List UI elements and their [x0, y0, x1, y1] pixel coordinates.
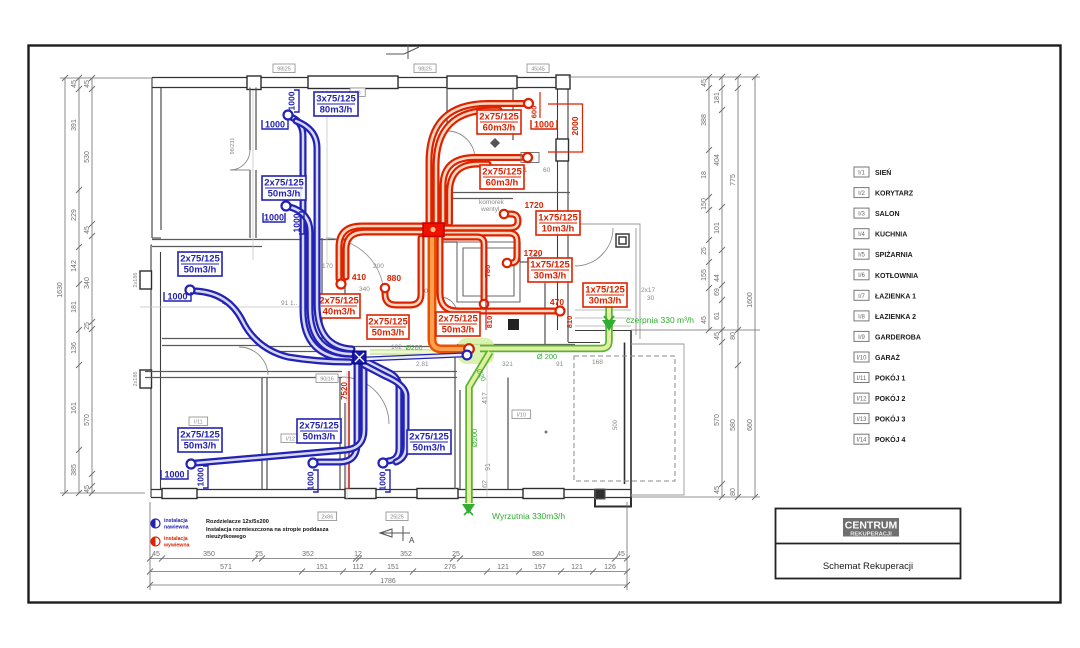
svg-text:I/12: I/12 — [286, 437, 295, 443]
svg-text:44: 44 — [714, 274, 721, 282]
svg-text:I/3: I/3 — [858, 212, 865, 218]
svg-text:168: 168 — [592, 359, 603, 366]
svg-text:I/7: I/7 — [858, 294, 865, 300]
svg-text:30: 30 — [647, 295, 655, 302]
svg-text:2x75/125: 2x75/125 — [438, 314, 478, 325]
svg-text:50m3/h: 50m3/h — [413, 443, 446, 454]
svg-text:SPIŻARNIA: SPIŻARNIA — [875, 251, 913, 259]
svg-text:121: 121 — [497, 564, 509, 571]
svg-text:570: 570 — [714, 414, 721, 426]
svg-text:410: 410 — [352, 272, 366, 282]
svg-text:KORYTARZ: KORYTARZ — [875, 191, 914, 198]
svg-text:1x75/125: 1x75/125 — [538, 213, 578, 224]
svg-text:98|25: 98|25 — [277, 67, 291, 73]
svg-text:571: 571 — [220, 564, 232, 571]
svg-text:80: 80 — [730, 332, 737, 340]
svg-text:Ø200: Ø200 — [470, 429, 479, 447]
svg-text:2x186: 2x186 — [133, 273, 139, 288]
svg-text:580: 580 — [730, 419, 737, 431]
svg-text:REKUPERACJI: REKUPERACJI — [850, 532, 892, 538]
svg-text:10m3/h: 10m3/h — [542, 224, 575, 235]
svg-text:2x75/125: 2x75/125 — [319, 296, 359, 307]
svg-text:30m3/h: 30m3/h — [589, 296, 622, 307]
svg-text:340: 340 — [359, 286, 370, 293]
svg-text:50m3/h: 50m3/h — [303, 432, 336, 443]
svg-text:229: 229 — [71, 209, 78, 221]
svg-text:157: 157 — [534, 564, 546, 571]
svg-text:91: 91 — [556, 361, 564, 368]
svg-text:50m3/h: 50m3/h — [268, 189, 301, 200]
svg-text:Instalacja rozmieszczona na st: Instalacja rozmieszczona na stropie podd… — [206, 527, 329, 533]
svg-text:570: 570 — [84, 414, 91, 426]
svg-text:25: 25 — [255, 551, 263, 558]
svg-text:2x75/125: 2x75/125 — [479, 112, 519, 123]
svg-text:Rozdzielacze 12x/5x200: Rozdzielacze 12x/5x200 — [206, 519, 269, 525]
svg-text:69: 69 — [714, 288, 721, 296]
svg-text:126: 126 — [604, 564, 616, 571]
svg-text:I/6: I/6 — [858, 273, 865, 279]
svg-text:I/11: I/11 — [857, 376, 867, 382]
svg-text:45: 45 — [84, 80, 91, 88]
svg-text:I/13: I/13 — [856, 417, 867, 423]
svg-text:1000: 1000 — [292, 213, 302, 232]
svg-text:45: 45 — [714, 332, 721, 340]
svg-text:POKÓJ 1: POKÓJ 1 — [875, 374, 905, 383]
svg-text:25: 25 — [84, 322, 91, 330]
svg-text:112: 112 — [352, 564, 363, 571]
svg-text:SALON: SALON — [875, 211, 900, 218]
svg-text:1630: 1630 — [57, 282, 64, 298]
svg-text:1x75/125: 1x75/125 — [585, 285, 625, 296]
svg-text:530: 530 — [84, 151, 91, 163]
svg-text:KUCHNIA: KUCHNIA — [875, 232, 907, 239]
svg-text:45: 45 — [701, 79, 708, 87]
svg-text:1000: 1000 — [264, 213, 284, 223]
svg-text:7520: 7520 — [340, 382, 349, 400]
svg-text:1000: 1000 — [164, 470, 184, 480]
svg-text:instalacja: instalacja — [164, 536, 188, 542]
svg-text:45: 45 — [71, 80, 78, 88]
svg-text:181: 181 — [714, 92, 721, 104]
svg-text:385: 385 — [71, 464, 78, 476]
svg-text:I/4: I/4 — [858, 232, 865, 238]
svg-text:POKÓJ 4: POKÓJ 4 — [875, 435, 905, 444]
svg-text:60m3/h: 60m3/h — [483, 123, 516, 134]
svg-text:350: 350 — [203, 551, 215, 558]
svg-text:I/9: I/9 — [858, 335, 865, 341]
svg-text:I/8: I/8 — [858, 314, 865, 320]
svg-text:ŁAZIENKA 2: ŁAZIENKA 2 — [875, 314, 916, 321]
svg-text:50m3/h: 50m3/h — [184, 265, 217, 276]
svg-text:25: 25 — [701, 247, 708, 255]
svg-text:80: 80 — [730, 488, 737, 496]
svg-text:GARAŻ: GARAŻ — [875, 354, 901, 362]
svg-text:komorek: komorek — [479, 199, 505, 206]
svg-text:I/2: I/2 — [858, 191, 865, 197]
svg-text:155: 155 — [701, 269, 708, 281]
svg-text:200: 200 — [373, 263, 384, 270]
svg-text:810: 810 — [565, 316, 574, 329]
svg-text:388: 388 — [701, 114, 708, 126]
svg-text:1000: 1000 — [534, 120, 554, 130]
svg-text:2x75/125: 2x75/125 — [299, 421, 339, 432]
svg-text:nieużytkowego: nieużytkowego — [206, 534, 247, 540]
svg-text:wywiewna: wywiewna — [163, 543, 189, 549]
svg-text:25|25: 25|25 — [390, 515, 404, 521]
svg-text:2x75/125: 2x75/125 — [368, 317, 408, 328]
svg-text:50m3/h: 50m3/h — [184, 441, 217, 452]
svg-text:161: 161 — [71, 402, 78, 414]
svg-text:I/1: I/1 — [858, 171, 865, 177]
svg-text:1600: 1600 — [747, 292, 754, 308]
svg-text:instalacja: instalacja — [164, 518, 188, 524]
svg-text:ŁAZIENKA 1: ŁAZIENKA 1 — [875, 293, 916, 300]
svg-text:POKÓJ 3: POKÓJ 3 — [875, 415, 905, 424]
svg-text:1000: 1000 — [167, 292, 187, 302]
svg-text:404: 404 — [714, 154, 721, 166]
svg-text:12: 12 — [354, 551, 362, 558]
svg-text:Ø200: Ø200 — [405, 345, 422, 352]
svg-text:25: 25 — [452, 551, 460, 558]
svg-text:321: 321 — [502, 361, 513, 368]
svg-text:352: 352 — [302, 551, 314, 558]
svg-text:580: 580 — [532, 551, 544, 558]
svg-text:1x75/125: 1x75/125 — [530, 260, 570, 271]
svg-text:775: 775 — [730, 174, 737, 186]
svg-text:500: 500 — [613, 419, 619, 430]
svg-text:45: 45 — [701, 316, 708, 324]
svg-text:80m3/h: 80m3/h — [320, 105, 353, 116]
svg-text:151: 151 — [387, 564, 399, 571]
svg-text:2x75/125: 2x75/125 — [409, 432, 449, 443]
svg-text:2000: 2000 — [570, 116, 580, 135]
svg-text:A: A — [409, 536, 415, 545]
svg-text:121: 121 — [571, 564, 583, 571]
svg-text:98|25: 98|25 — [418, 67, 432, 73]
svg-text:2x75/125: 2x75/125 — [482, 167, 522, 178]
svg-text:101: 101 — [714, 222, 721, 234]
svg-text:181: 181 — [71, 301, 78, 313]
svg-text:340: 340 — [84, 277, 91, 289]
svg-text:Schemat Rekuperacji: Schemat Rekuperacji — [823, 561, 913, 572]
svg-text:I/12: I/12 — [856, 397, 867, 403]
svg-text:czerpnia 330 m³/h: czerpnia 330 m³/h — [626, 315, 694, 325]
svg-text:18: 18 — [701, 171, 708, 179]
svg-text:1000: 1000 — [265, 120, 285, 130]
svg-text:780: 780 — [483, 265, 492, 278]
svg-text:417: 417 — [482, 392, 489, 404]
svg-text:KOTŁOWNIA: KOTŁOWNIA — [875, 273, 918, 280]
svg-text:62: 62 — [482, 480, 489, 488]
svg-text:2x186: 2x186 — [133, 372, 139, 387]
svg-text:3x75/125: 3x75/125 — [316, 94, 356, 105]
svg-text:1786: 1786 — [380, 578, 396, 585]
svg-text:50m3/h: 50m3/h — [372, 328, 405, 339]
svg-text:470: 470 — [550, 297, 564, 307]
svg-text:2x75/125: 2x75/125 — [180, 430, 220, 441]
svg-text:SIEŃ: SIEŃ — [875, 168, 891, 177]
svg-text:1000: 1000 — [378, 471, 388, 490]
svg-text:40m3/h: 40m3/h — [323, 307, 356, 318]
svg-text:142: 142 — [71, 260, 78, 272]
svg-text:276: 276 — [444, 564, 456, 571]
svg-text:60: 60 — [543, 167, 551, 174]
svg-text:I/10: I/10 — [856, 356, 867, 362]
svg-text:136: 136 — [71, 342, 78, 354]
svg-text:880: 880 — [387, 273, 401, 283]
svg-text:2x75/125: 2x75/125 — [264, 178, 304, 189]
svg-text:nawiewna: nawiewna — [164, 525, 189, 531]
svg-text:170: 170 — [322, 263, 333, 270]
svg-text:50m3/h: 50m3/h — [442, 325, 475, 336]
svg-text:Ø 200: Ø 200 — [537, 352, 557, 361]
svg-text:45: 45 — [152, 551, 160, 558]
svg-text:wentyl.: wentyl. — [480, 206, 501, 213]
svg-text:I/10: I/10 — [517, 413, 526, 419]
svg-text:1000: 1000 — [306, 471, 316, 490]
svg-text:45|45: 45|45 — [531, 67, 545, 73]
svg-text:GARDEROBA: GARDEROBA — [875, 334, 921, 341]
svg-text:I/14: I/14 — [856, 438, 867, 444]
svg-text:CENTRUM: CENTRUM — [845, 520, 898, 532]
svg-text:45: 45 — [84, 226, 91, 234]
svg-text:90|16: 90|16 — [320, 377, 334, 383]
svg-text:91: 91 — [485, 463, 492, 471]
svg-text:2x17: 2x17 — [641, 287, 655, 294]
svg-text:660: 660 — [747, 419, 754, 431]
svg-text:45: 45 — [84, 485, 91, 493]
svg-text:Wyrzutnia 330m3/h: Wyrzutnia 330m3/h — [492, 511, 565, 521]
svg-text:60m3/h: 60m3/h — [486, 178, 519, 189]
svg-text:1000: 1000 — [287, 91, 297, 110]
svg-text:30m3/h: 30m3/h — [534, 271, 567, 282]
svg-text:150: 150 — [701, 198, 708, 210]
svg-text:1000: 1000 — [196, 467, 206, 486]
svg-text:1720: 1720 — [524, 248, 543, 258]
svg-text:600: 600 — [530, 106, 539, 119]
svg-text:45: 45 — [714, 486, 721, 494]
svg-text:2.81: 2.81 — [416, 361, 429, 368]
svg-text:151: 151 — [316, 564, 328, 571]
svg-text:I/5: I/5 — [858, 253, 865, 259]
svg-text:91 1..: 91 1.. — [281, 300, 297, 307]
svg-text:1720: 1720 — [525, 200, 544, 210]
svg-text:98/231: 98/231 — [230, 138, 236, 155]
svg-text:POKÓJ 2: POKÓJ 2 — [875, 394, 905, 403]
svg-text:2x75/125: 2x75/125 — [180, 254, 220, 265]
svg-text:61: 61 — [714, 312, 721, 320]
svg-text:I/11: I/11 — [194, 420, 203, 426]
svg-text:2x86: 2x86 — [321, 515, 333, 521]
svg-text:45: 45 — [617, 551, 625, 558]
svg-text:391: 391 — [71, 119, 78, 131]
svg-text:352: 352 — [400, 551, 412, 558]
